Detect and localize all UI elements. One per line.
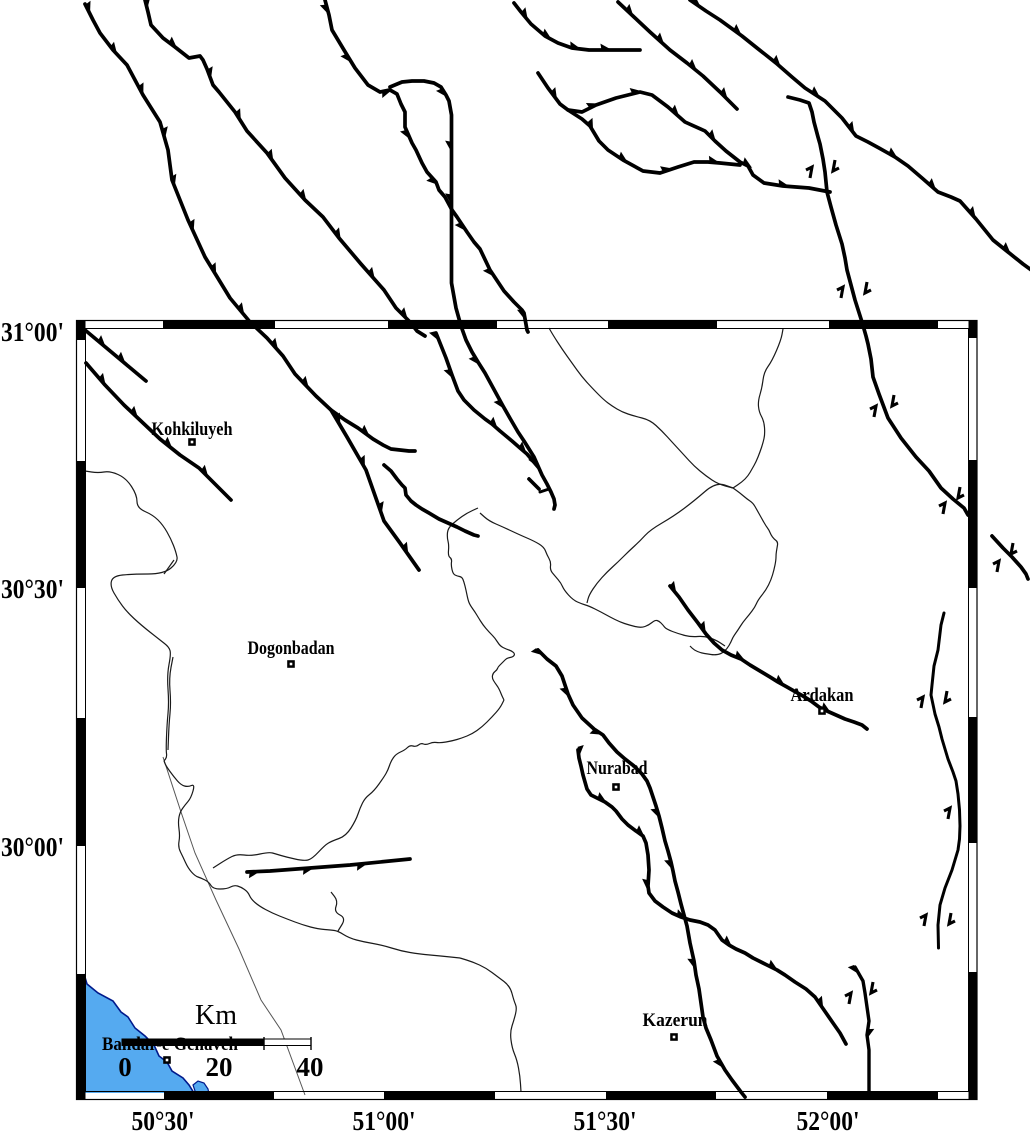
svg-text:Km: Km [195, 1000, 237, 1031]
svg-text:40: 40 [297, 1052, 324, 1082]
svg-text:0: 0 [118, 1052, 132, 1082]
svg-text:20: 20 [206, 1052, 233, 1082]
svg-text:Nurabad: Nurabad [587, 758, 648, 779]
svg-text:Kohkiluyeh: Kohkiluyeh [152, 419, 233, 440]
svg-text:30°30': 30°30' [1, 574, 64, 604]
svg-text:51°00': 51°00' [353, 1106, 416, 1132]
svg-text:52°00': 52°00' [797, 1106, 860, 1132]
svg-text:Kazerun: Kazerun [643, 1010, 708, 1031]
svg-text:Dogonbadan: Dogonbadan [248, 638, 335, 659]
svg-text:31°00': 31°00' [1, 317, 64, 347]
svg-text:Ardakan: Ardakan [791, 685, 854, 706]
svg-text:51°30': 51°30' [574, 1106, 637, 1132]
svg-text:30°00': 30°00' [1, 832, 64, 862]
svg-text:50°30': 50°30' [132, 1106, 195, 1132]
